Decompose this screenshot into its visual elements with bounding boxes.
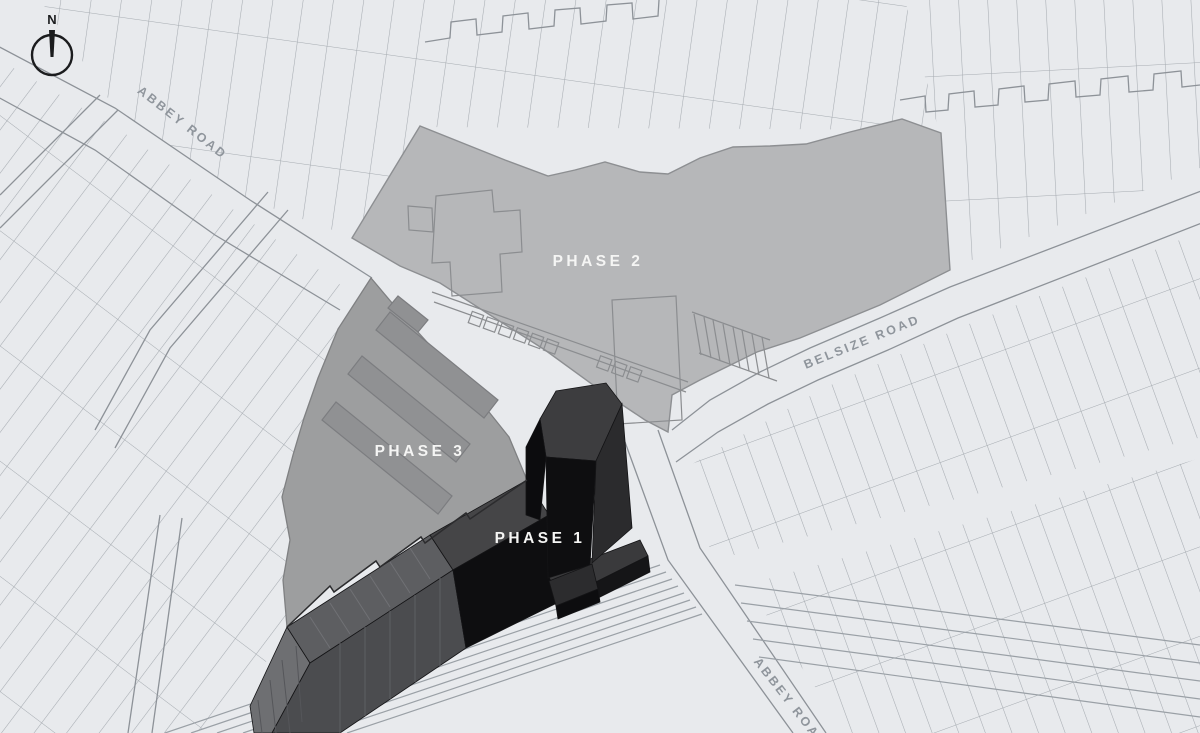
tower-front-face bbox=[546, 457, 596, 578]
compass-north-label: N bbox=[47, 12, 56, 27]
site-plan-map: ABBEY ROAD BELSIZE ROAD ABBEY ROAD PHASE… bbox=[0, 0, 1200, 733]
phase-3-label: PHASE 3 bbox=[375, 443, 466, 460]
phase-2-label: PHASE 2 bbox=[553, 253, 644, 270]
phase-1-label: PHASE 1 bbox=[495, 530, 586, 547]
site-plan-svg: ABBEY ROAD BELSIZE ROAD ABBEY ROAD PHASE… bbox=[0, 0, 1200, 733]
